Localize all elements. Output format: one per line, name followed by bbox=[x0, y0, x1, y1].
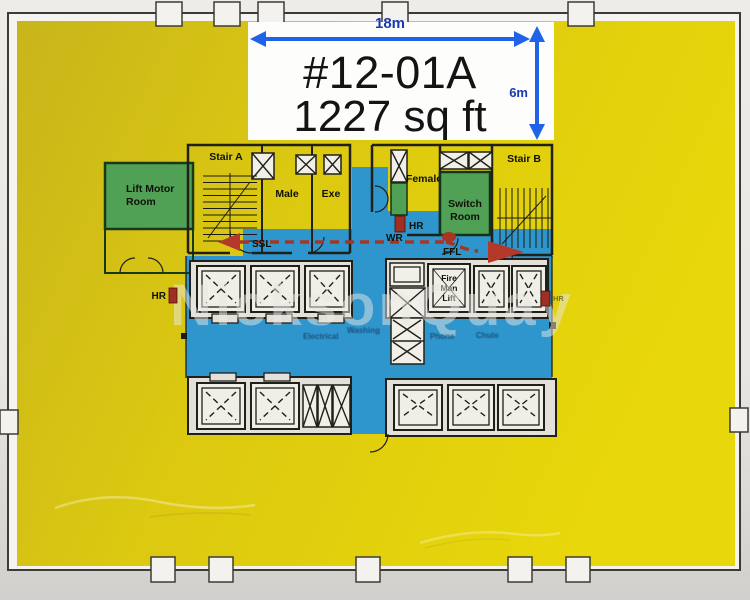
column-stub bbox=[566, 557, 590, 582]
unit-label-card: #12-01A 1227 sq ft 18m 6m bbox=[248, 15, 554, 141]
floor-plan-canvas: Lift Motor Room Stair A Male Exe bbox=[0, 0, 750, 600]
column-stub bbox=[356, 557, 380, 582]
wr-label: WR bbox=[386, 233, 403, 244]
column-stub bbox=[508, 557, 532, 582]
hr-center-label: HR bbox=[409, 221, 424, 232]
exe-toilet-label: Exe bbox=[322, 188, 341, 200]
lift-motor-room-label-line2: Room bbox=[126, 196, 156, 208]
ssl-label: SSL bbox=[252, 239, 271, 250]
column-stub bbox=[151, 557, 175, 582]
stair-b-label: Stair B bbox=[507, 153, 541, 165]
riser-shafts bbox=[303, 385, 350, 427]
riser-label-washing: Washing bbox=[347, 326, 380, 335]
hr-left-label: HR bbox=[152, 291, 167, 302]
floor-plan-photo: Lift Motor Room Stair A Male Exe bbox=[0, 0, 750, 600]
lift-door bbox=[210, 373, 236, 381]
switch-room-label-line1: Switch bbox=[448, 198, 482, 210]
male-toilet-label: Male bbox=[275, 188, 299, 200]
column-stub bbox=[209, 557, 233, 582]
lift-shaft bbox=[394, 385, 442, 430]
lift-shaft bbox=[448, 385, 494, 430]
column-stub bbox=[156, 2, 182, 26]
width-dimension-label: 18m bbox=[375, 15, 405, 32]
column-stub bbox=[730, 408, 748, 432]
ffl-label: FFL bbox=[443, 247, 461, 258]
column-stub bbox=[568, 2, 594, 26]
lift-shaft bbox=[498, 385, 544, 430]
switch-room: Switch Room bbox=[440, 172, 490, 235]
unit-number-text: #12-01A bbox=[303, 47, 477, 98]
lift-door bbox=[264, 373, 290, 381]
unit-area-text: 1227 sq ft bbox=[293, 92, 486, 141]
corridor-blue bbox=[348, 377, 390, 434]
hr-right-label: HR bbox=[553, 294, 564, 303]
stair-a-label: Stair A bbox=[209, 151, 243, 163]
hose-reel-box bbox=[395, 216, 405, 232]
lift-bank-lower-left bbox=[188, 373, 351, 434]
lift-bank-lower-right bbox=[386, 379, 556, 436]
column-stub bbox=[214, 2, 240, 26]
switch-room-label-line2: Room bbox=[450, 211, 480, 223]
hose-reel-box bbox=[541, 291, 550, 306]
depth-dimension-label: 6m bbox=[509, 85, 528, 100]
riser-label-chute: Chute bbox=[476, 331, 499, 340]
female-toilet-label: Female bbox=[406, 173, 442, 185]
ffl-marker-dot bbox=[442, 232, 456, 242]
hose-reel-box bbox=[169, 288, 177, 303]
ahu-riser-green bbox=[391, 183, 407, 215]
riser-label-phone: Phone bbox=[430, 332, 455, 341]
lift-shaft bbox=[251, 383, 299, 429]
lift-shaft bbox=[197, 383, 245, 429]
riser-label-electrical: Electrical bbox=[303, 332, 339, 341]
column-stub bbox=[0, 410, 18, 434]
lift-motor-room-label-line1: Lift Motor bbox=[126, 183, 174, 195]
